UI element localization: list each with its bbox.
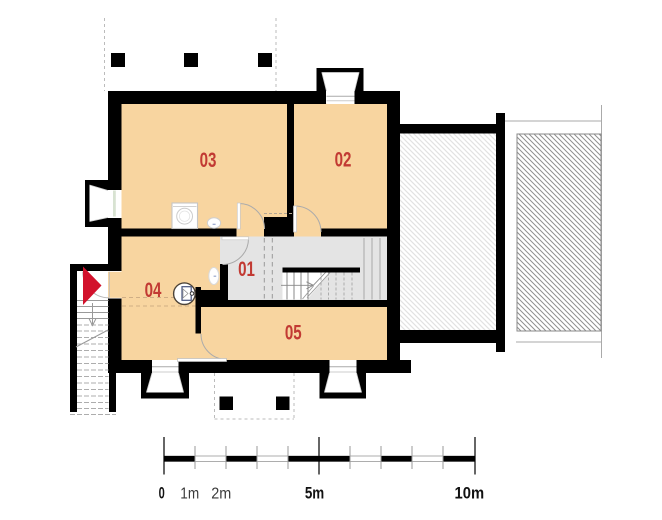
svg-text:04: 04 — [145, 277, 162, 301]
svg-text:03: 03 — [200, 147, 217, 171]
svg-text:2m: 2m — [211, 485, 231, 503]
svg-text:5m: 5m — [305, 484, 324, 503]
svg-text:01: 01 — [238, 256, 255, 280]
svg-text:1m: 1m — [180, 486, 199, 503]
svg-text:05: 05 — [285, 320, 302, 344]
svg-text:0: 0 — [159, 484, 165, 503]
svg-text:02: 02 — [335, 147, 352, 171]
svg-text:10m: 10m — [455, 485, 485, 503]
